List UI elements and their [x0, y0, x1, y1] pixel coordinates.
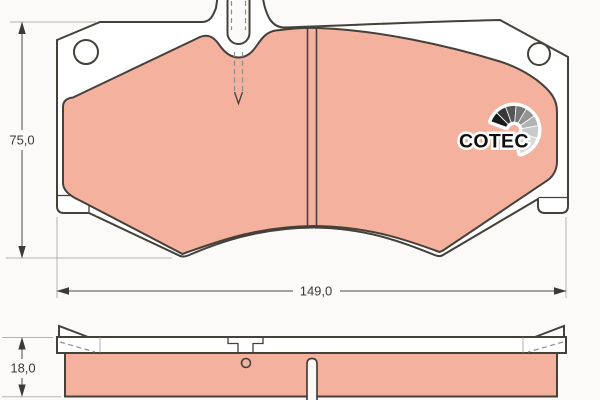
left-mounting-hole: [74, 40, 98, 64]
height-dimension: 75,0: [9, 22, 34, 259]
technical-drawing: COTEC 75,0 149,0: [0, 0, 600, 400]
side-left-bent-tab: [59, 326, 88, 337]
cotec-logo-text: COTEC: [459, 131, 529, 153]
thickness-dimension: 18,0: [10, 337, 35, 397]
arrow-down: [18, 385, 25, 398]
arrow-left: [57, 287, 70, 294]
arrow-right: [554, 287, 567, 294]
height-dimension-label: 75,0: [9, 133, 34, 148]
thickness-dimension-label: 18,0: [10, 361, 35, 376]
side-view: [57, 326, 566, 400]
arrow-up: [18, 22, 25, 35]
top-view: COTEC: [57, 0, 568, 257]
right-mounting-hole: [528, 43, 550, 65]
side-right-bent-tab: [535, 326, 564, 337]
notch-hidden-lines: [232, 1, 246, 30]
width-dimension: 149,0: [57, 284, 567, 299]
width-dimension-label: 149,0: [300, 284, 333, 299]
side-groove-slot: [307, 359, 317, 400]
arrow-up: [18, 337, 25, 350]
arrow-down: [18, 246, 25, 259]
brake-pad-drawing-canvas: COTEC 75,0 149,0: [0, 0, 600, 400]
side-backing-plate: [57, 337, 566, 353]
